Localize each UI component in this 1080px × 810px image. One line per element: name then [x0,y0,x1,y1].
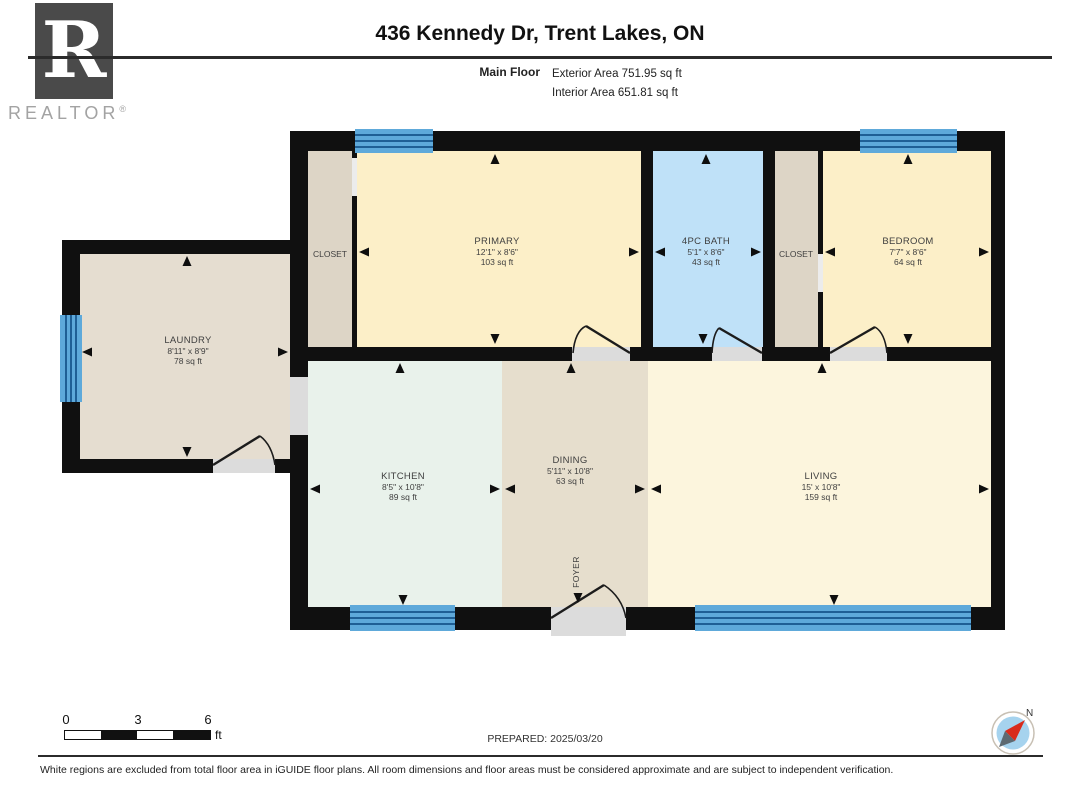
wall-closet-right-a [818,151,823,254]
interior-area: Interior Area 651.81 sq ft [552,84,682,103]
opening-laundry-kitchen [290,377,308,435]
room-area: 89 sq ft [333,492,473,502]
room-area: 78 sq ft [118,356,258,366]
room-name: KITCHEN [333,472,473,482]
room-area: 63 sq ft [500,476,640,486]
label-kitchen: KITCHEN 8'5" x 10'8" 89 sq ft [333,472,473,502]
window-kitchen-bottom [350,605,455,631]
wall-mid-4 [887,347,1005,361]
wall-bottom-2 [455,607,551,630]
wall-laundry-top [62,240,290,254]
room-name: LIVING [751,472,891,482]
room-dims: 7'7" x 8'6" [838,247,978,257]
label-closet-right: CLOSET [766,249,826,259]
footer-divider [38,755,1043,757]
room-name: LAUNDRY [118,336,258,346]
label-foyer: FOYER [571,542,583,602]
wall-mid-1 [290,347,572,361]
room-area: 43 sq ft [638,257,774,267]
footer-disclaimer: White regions are excluded from total fl… [40,764,1040,776]
room-area: 64 sq ft [838,257,978,267]
threshold-laundry-door [213,459,275,473]
label-bedroom: BEDROOM 7'7" x 8'6" 64 sq ft [838,237,978,267]
wall-mid-2 [630,347,712,361]
realtor-logo-letter: R [42,3,107,99]
compass-icon: N [992,708,1034,754]
prepared-date: PREPARED: 2025/03/20 [0,733,1080,745]
opening-closet-right [818,254,823,292]
wall-laundry-bottom-2 [275,459,308,473]
label-closet-left: CLOSET [300,249,360,259]
wall-right-main [991,131,1005,630]
threshold-bath-door [712,347,762,361]
wall-bottom-4 [971,607,1005,630]
room-area: 103 sq ft [427,257,567,267]
exterior-area: Exterior Area 751.95 sq ft [552,65,682,84]
label-bath: 4PC BATH 5'1" x 8'6" 43 sq ft [638,237,774,267]
room-area: 159 sq ft [751,492,891,502]
wall-laundry-bottom-1 [62,459,213,473]
opening-closet-left [352,158,357,196]
wall-closet-right-b [818,292,823,347]
room-dims: 15' x 10'8" [751,482,891,492]
area-summary: Exterior Area 751.95 sq ft Interior Area… [552,65,682,103]
floor-plan-page: R REALTOR® 436 Kennedy Dr, Trent Lakes, … [0,0,1080,810]
threshold-entry-door [551,607,626,636]
label-primary: PRIMARY 12'1" x 8'6" 103 sq ft [427,237,567,267]
floor-label: Main Floor [404,65,540,79]
wall-mid-3 [762,347,830,361]
wall-bottom-1 [290,607,350,630]
realtor-wordmark: REALTOR® [8,103,126,124]
threshold-bedroom-door [830,347,887,361]
compass-north-label: N [1026,708,1033,719]
realtor-logo-icon: R [35,3,113,99]
label-dining: DINING 5'11" x 10'8" 63 sq ft [500,456,640,486]
title-divider [28,56,1052,59]
room-name: BEDROOM [838,237,978,247]
wall-closet-left-b [352,196,357,347]
room-dims: 5'1" x 8'6" [638,247,774,257]
room-name: PRIMARY [427,237,567,247]
window-living-bottom [695,605,971,631]
registered-mark: ® [119,104,126,114]
window-bedroom-top [860,129,957,153]
realtor-wordmark-text: REALTOR [8,103,119,123]
scale-tick-0: 0 [56,712,76,727]
room-dims: 12'1" x 8'6" [427,247,567,257]
room-dims: 8'5" x 10'8" [333,482,473,492]
threshold-primary-door [572,347,630,361]
window-laundry-left [60,315,82,402]
wall-bottom-3 [626,607,695,630]
label-living: LIVING 15' x 10'8" 159 sq ft [751,472,891,502]
window-primary-top [355,129,433,153]
scale-tick-end: 6 [198,712,218,727]
room-name: 4PC BATH [638,237,774,247]
room-dims: 5'11" x 10'8" [500,466,640,476]
room-dims: 8'11" x 8'9" [118,346,258,356]
scale-tick-mid: 3 [128,712,148,727]
label-laundry: LAUNDRY 8'11" x 8'9" 78 sq ft [118,336,258,366]
page-title: 436 Kennedy Dr, Trent Lakes, ON [0,22,1080,46]
room-name: DINING [500,456,640,466]
